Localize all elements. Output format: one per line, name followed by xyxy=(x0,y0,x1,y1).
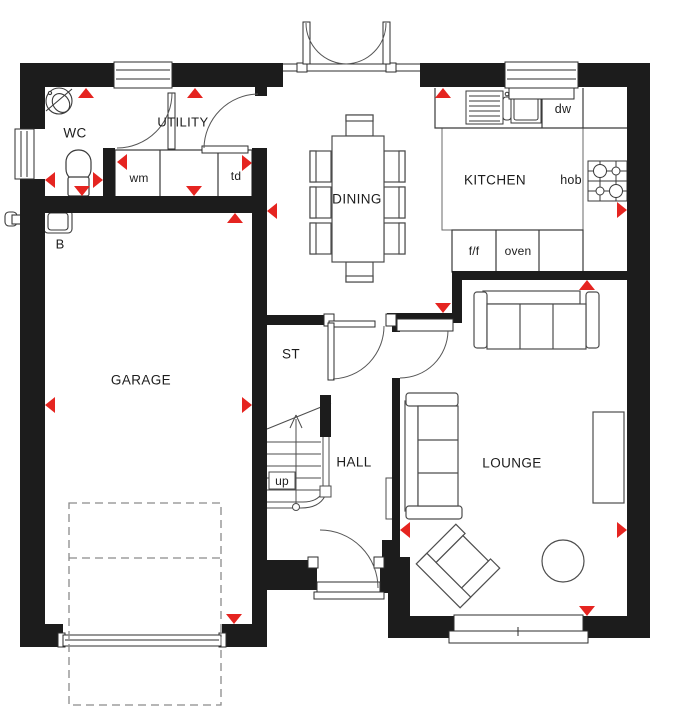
room-label-kitchen: KITCHEN xyxy=(464,173,526,187)
room-label-store: ST xyxy=(282,347,300,361)
marker-triangle-icon xyxy=(187,88,203,98)
marker-triangle-icon xyxy=(242,397,252,413)
lounge-side-table xyxy=(542,540,584,582)
appliance-label-dishwasher: dw xyxy=(555,103,571,116)
lounge-sofa-top xyxy=(474,291,599,349)
appliance-label-tumble-dryer: td xyxy=(231,170,241,182)
front-door xyxy=(308,530,384,599)
room-label-garage: GARAGE xyxy=(111,373,171,387)
marker-triangle-icon xyxy=(400,522,410,538)
french-doors xyxy=(283,22,420,72)
appliance-label-washing-machine: wm xyxy=(129,172,148,184)
lounge-armchair xyxy=(416,524,499,607)
kitchen-window xyxy=(505,62,578,99)
appliance-label-hob: hob xyxy=(560,174,581,187)
floor-plan: WC UTILITY wm td DINING KITCHEN dw hob f… xyxy=(0,0,673,716)
lounge-window xyxy=(449,615,588,643)
garage-door-swing-outline xyxy=(69,503,221,705)
marker-triangle-icon xyxy=(617,202,627,218)
marker-triangle-icon xyxy=(435,303,451,313)
lounge-sofa-left xyxy=(405,393,462,519)
lounge-sideboard xyxy=(593,412,624,503)
wc-window xyxy=(15,129,34,179)
lounge-door xyxy=(397,319,453,378)
stairs-up-label: up xyxy=(275,475,289,487)
wc-basin xyxy=(46,88,73,116)
appliance-label-boiler: B xyxy=(56,238,65,251)
hall-door xyxy=(324,314,396,380)
marker-triangle-icon xyxy=(78,88,94,98)
marker-triangle-icon xyxy=(93,172,103,188)
marker-triangle-icon xyxy=(226,614,242,624)
room-label-wc: WC xyxy=(63,126,86,140)
utility-window xyxy=(114,62,172,88)
room-label-dining: DINING xyxy=(332,192,382,206)
utility-door xyxy=(202,94,258,153)
appliance-label-fridge-freezer: f/f xyxy=(469,245,480,257)
floor-plan-drawing xyxy=(0,0,673,716)
marker-triangle-icon xyxy=(617,522,627,538)
appliance-label-oven: oven xyxy=(505,245,532,257)
marker-triangle-icon xyxy=(579,280,595,290)
room-label-utility: UTILITY xyxy=(157,116,208,129)
marker-triangle-icon xyxy=(435,88,451,98)
garage-door xyxy=(58,633,226,647)
marker-triangle-icon xyxy=(227,213,243,223)
windows xyxy=(15,62,588,643)
marker-triangle-icon xyxy=(267,203,277,219)
room-label-hall: HALL xyxy=(336,455,371,469)
room-label-lounge: LOUNGE xyxy=(482,456,541,470)
marker-triangle-icon xyxy=(45,397,55,413)
hob-unit xyxy=(588,161,627,201)
marker-triangle-icon xyxy=(45,172,55,188)
